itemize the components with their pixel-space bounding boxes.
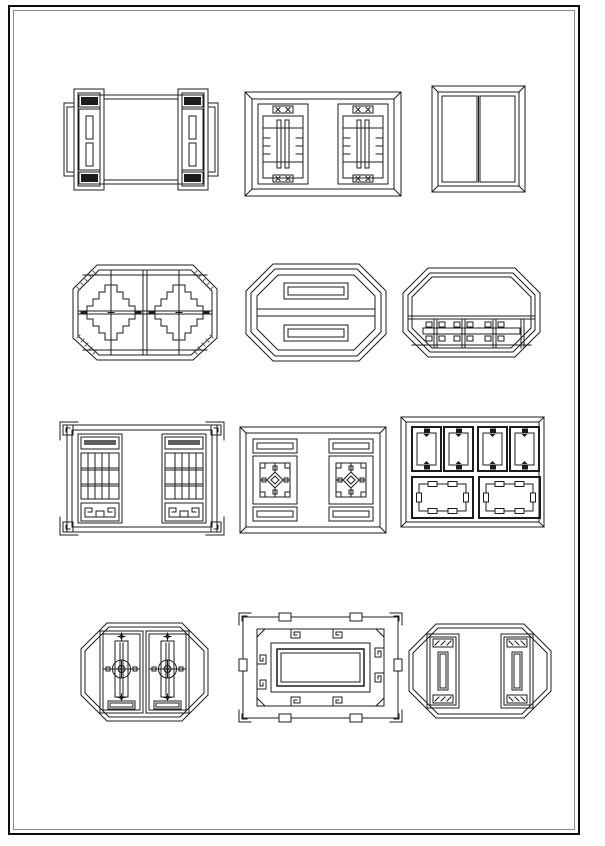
w5-svg [244,262,388,363]
window-drawing-grid-panels-rect [58,420,226,537]
w7-svg [58,420,226,537]
window-drawing-cracked-ice-octagon [244,262,388,363]
window-drawing-six-panel-rect [399,415,546,529]
w4-svg [71,263,219,362]
w3-svg [430,84,527,194]
window-drawing-cracked-ice-side-octagon [407,622,553,720]
window-drawing-stepped-fret-octagon [71,263,219,362]
window-drawing-fret-band-octagon [401,266,542,359]
w12-svg [407,622,553,720]
w10-svg [79,621,210,723]
window-drawing-medallion-doors-octagon [79,621,210,723]
w6-svg [401,266,542,359]
window-drawing-slatted-rect [243,90,403,198]
drawing-sheet [0,0,605,846]
w9-svg [399,415,546,529]
window-drawing-medallion-panels-rect [237,424,389,536]
window-drawing-cracked-ice-rect [60,87,222,192]
w8-svg [237,424,389,536]
w2-svg [243,90,403,198]
w11-svg [237,611,404,724]
window-drawing-greek-key-rect [237,611,404,724]
w1-svg [60,87,222,192]
window-drawing-floral-lattice [430,84,527,194]
